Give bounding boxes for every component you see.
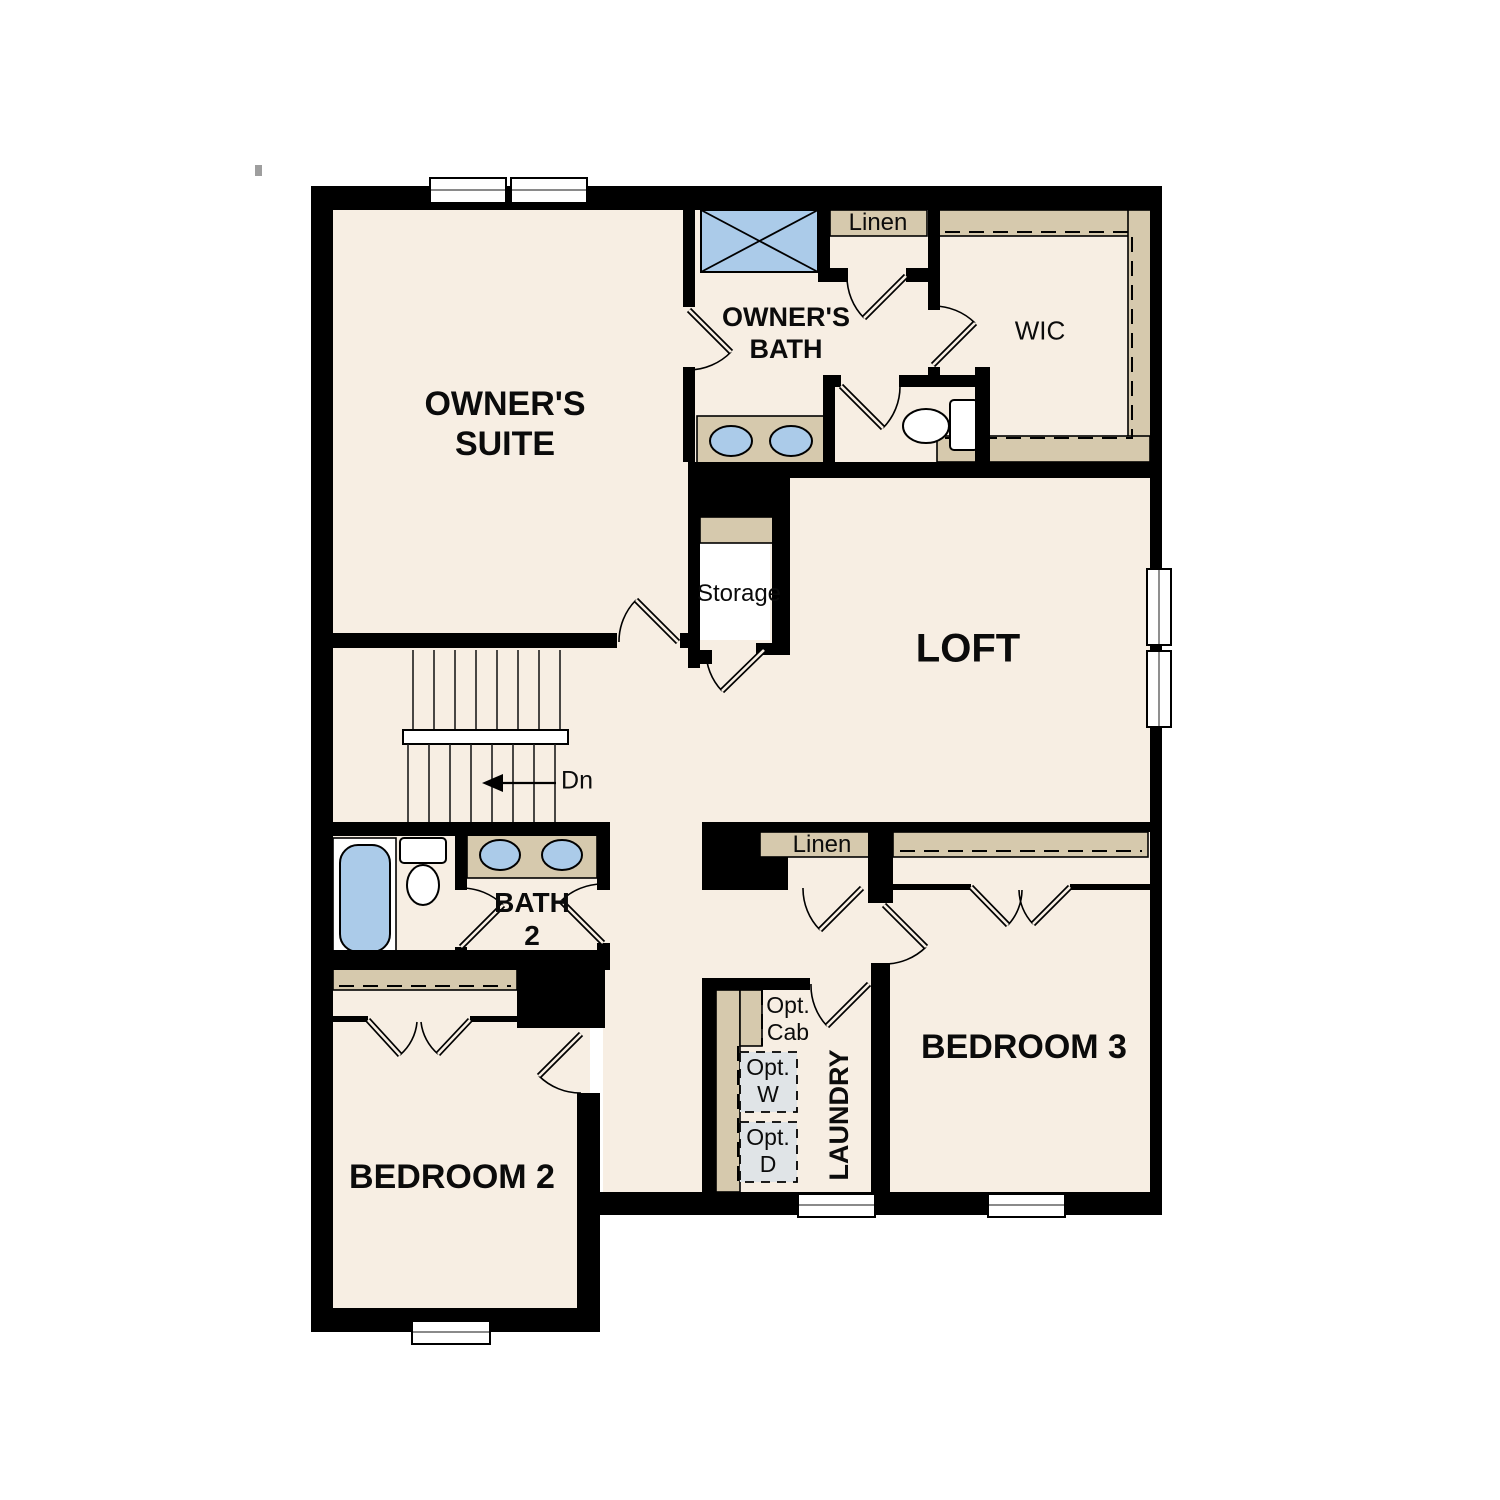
hall-floor — [603, 822, 716, 1192]
bedroom2-wall-right — [577, 1093, 600, 1332]
owners-suite-label-line2: SUITE — [424, 424, 585, 464]
bedroom2-window — [412, 1321, 490, 1344]
opt-cab-label-line2: Cab — [766, 1019, 809, 1046]
bath2-jamb-west — [455, 947, 467, 958]
opt-washer-label-line1: Opt. — [746, 1054, 789, 1081]
owners-bath-label-line2: BATH — [722, 334, 850, 366]
bedroom3-closet-shelf — [893, 832, 1148, 857]
opt-cab-label-line1: Opt. — [766, 992, 809, 1019]
linen-hall-block-a — [702, 832, 760, 857]
bedroom2-label: BEDROOM 2 — [349, 1157, 555, 1197]
loft-label: LOFT — [916, 625, 1020, 672]
scan-artifact-mark — [255, 165, 262, 176]
owners-suite-window-right — [511, 178, 587, 203]
bath2-wall-east — [597, 822, 610, 890]
owners-bath-label-line1: OWNER'S — [722, 302, 850, 334]
sink — [480, 840, 520, 870]
linen-upper-label: Linen — [849, 209, 908, 237]
wall-block-below-vanity — [688, 462, 790, 517]
floor-plan: OWNER'S SUITE OWNER'S BATH Linen WIC Sto… — [0, 0, 1500, 1500]
opt-cab-label: Opt. Cab — [766, 992, 809, 1046]
bath2-label: BATH 2 — [494, 886, 570, 952]
laundry-wall-west — [702, 978, 716, 1215]
bedroom2-closet-front-right — [470, 1016, 517, 1022]
laundry-window — [798, 1194, 875, 1217]
linen-hall-label: Linen — [793, 831, 852, 859]
opt-washer-label: Opt. W — [746, 1054, 789, 1108]
laundry-label: LAUNDRY — [824, 1050, 856, 1181]
bedroom3-closet-front-right — [1070, 884, 1150, 890]
floor-plan-drawing — [0, 0, 1500, 1500]
owners-vanity — [697, 416, 830, 466]
wc-wall-east — [975, 367, 990, 462]
bath2-wall-west — [455, 822, 467, 890]
bath2-label-line1: BATH — [494, 886, 570, 919]
owners-bath-label: OWNER'S BATH — [722, 302, 850, 366]
opt-dryer-label-line1: Opt. — [746, 1124, 789, 1151]
bedroom2-closet-front-left — [333, 1016, 368, 1022]
sink — [710, 426, 752, 456]
bedroom3-window — [988, 1194, 1065, 1217]
sink — [542, 840, 582, 870]
loft-window-upper — [1147, 569, 1171, 645]
bathtub — [333, 838, 396, 959]
loft-window-lower — [1147, 651, 1171, 727]
linen-hall-block-b — [702, 857, 788, 890]
storage-label: Storage — [697, 580, 781, 608]
hall-band-floor — [600, 880, 890, 992]
owners-suite-label: OWNER'S SUITE — [424, 384, 585, 464]
sink — [770, 426, 812, 456]
linen-hall-wall-east — [868, 832, 893, 903]
stair-landing — [403, 730, 568, 744]
loft-wall-south — [702, 822, 1150, 832]
owners-bath-wall-west-a — [683, 210, 695, 307]
owners-suite-label-line1: OWNER'S — [424, 384, 585, 424]
opt-dryer-label: Opt. D — [746, 1124, 789, 1178]
opt-cabinet-counter — [740, 990, 762, 1046]
opt-dryer-label-line2: D — [746, 1151, 789, 1178]
owners-suite-wall-south — [311, 633, 617, 648]
bath2-vanity — [467, 832, 597, 878]
bedroom3-wall-west — [871, 963, 890, 1215]
storage-shelf — [700, 517, 778, 543]
bath2-label-line2: 2 — [494, 919, 570, 952]
linen-upper-jamb-left — [818, 268, 848, 282]
bedroom3-closet-front-left — [893, 884, 971, 890]
laundry-wall-north — [702, 978, 810, 990]
wic-label: WIC — [1015, 316, 1066, 347]
wic-wall-west — [928, 210, 940, 310]
stairs-down-label: Dn — [561, 766, 593, 796]
laundry-counter-strip — [716, 990, 740, 1192]
bedroom3-label: BEDROOM 3 — [921, 1027, 1127, 1067]
opt-washer-label-line2: W — [746, 1081, 789, 1108]
owners-suite-window-left — [430, 178, 506, 203]
shower — [701, 210, 818, 272]
storage-jamb-left — [688, 650, 712, 664]
wc-wall-north-right — [899, 375, 975, 387]
exterior-wall-left — [311, 186, 333, 1332]
owners-bath-wall-west-b — [683, 367, 695, 462]
bath2-jamb-east — [597, 943, 610, 967]
wc-wall-west — [823, 377, 835, 462]
